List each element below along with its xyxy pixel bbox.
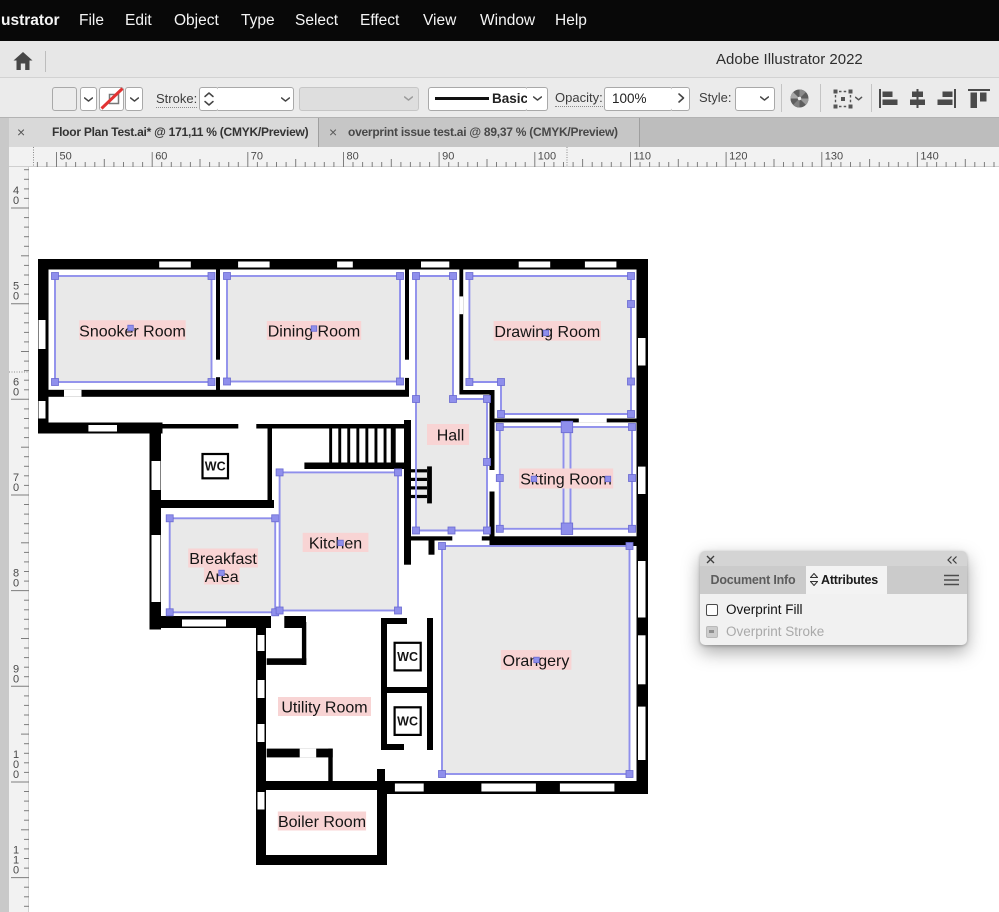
svg-text:Utility Room: Utility Room [281, 700, 367, 717]
svg-text:Boiler Room: Boiler Room [278, 814, 366, 831]
svg-text:Breakfast: Breakfast [189, 551, 257, 568]
svg-text:WC: WC [205, 460, 226, 474]
svg-text:WC: WC [397, 715, 418, 729]
svg-text:WC: WC [397, 650, 418, 664]
svg-text:Kitchen: Kitchen [309, 536, 362, 553]
svg-text:Hall: Hall [437, 428, 465, 445]
